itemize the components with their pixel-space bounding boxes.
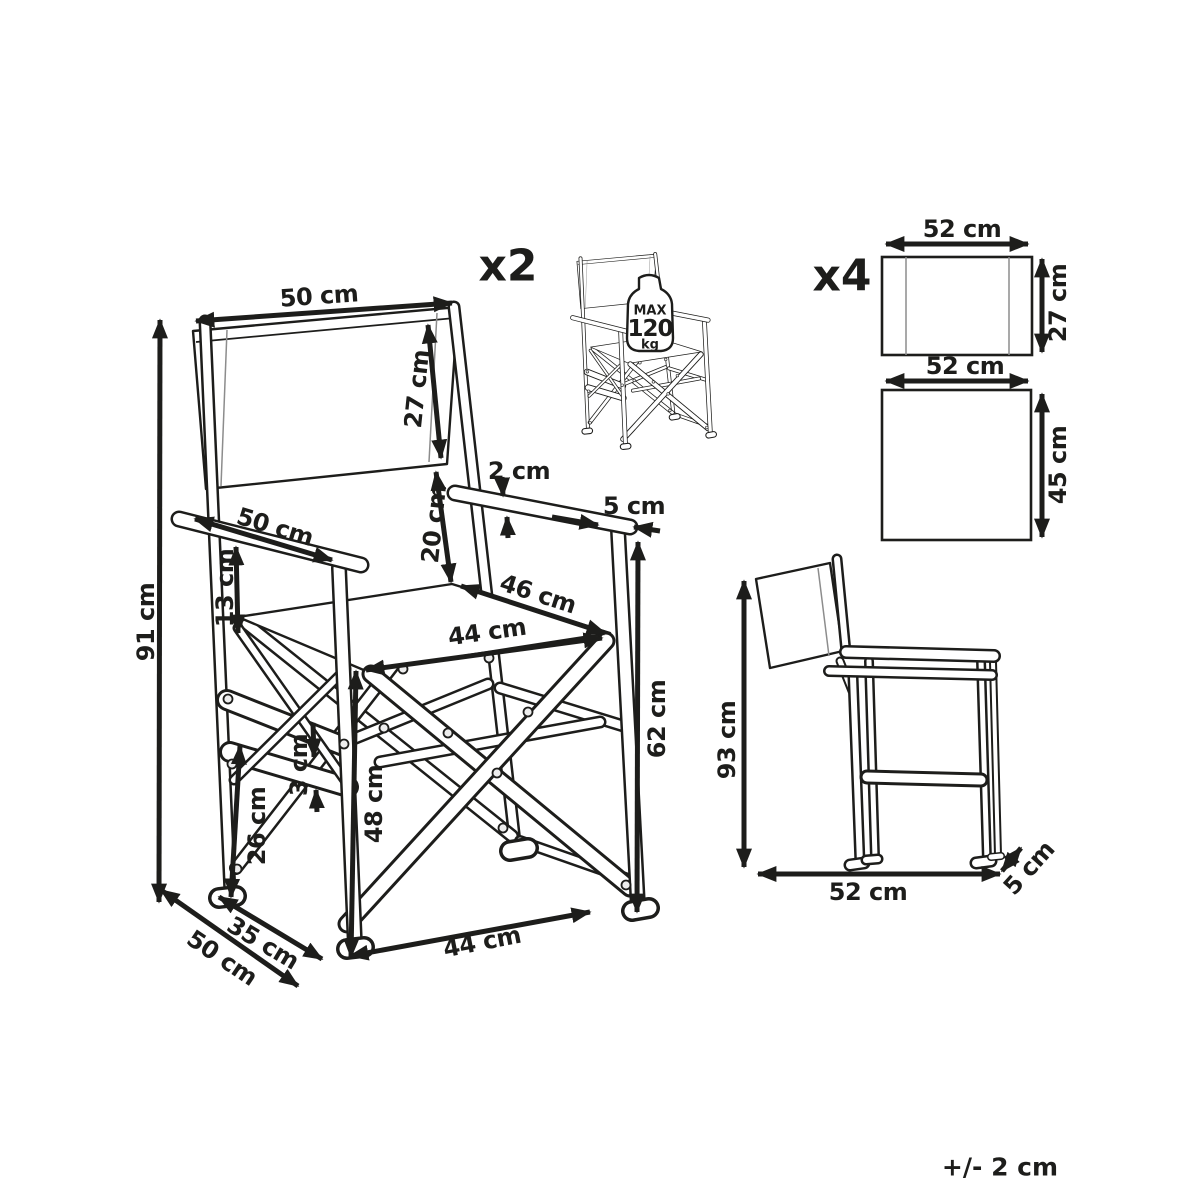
- dim-label: 52 cm: [829, 878, 908, 906]
- dim-label: 91 cm: [132, 583, 160, 662]
- dim-label: 45 cm: [1044, 426, 1072, 505]
- dim-label: 48 cm: [360, 765, 388, 844]
- dim-sv-frame-thickness: 5 cm: [998, 835, 1060, 900]
- chair-quantity-label: x2: [479, 241, 538, 292]
- dim-label: 62 cm: [643, 680, 671, 759]
- dim-backrest-panel-width: 52 cm: [886, 215, 1028, 244]
- panel-quantity-label: x4: [813, 251, 872, 302]
- dim-fv-total-height: 91 cm: [132, 320, 160, 902]
- dim-label: 52 cm: [926, 352, 1005, 380]
- dim-sv-total-height: 93 cm: [713, 581, 744, 867]
- dim-label: 26 cm: [243, 787, 271, 866]
- dim-fv-base-width: 44 cm: [350, 912, 590, 963]
- backrest-fabric-panel-drawing: [882, 257, 1032, 355]
- seat-fabric-panel-drawing: [882, 390, 1031, 540]
- dim-label: 5 cm: [603, 492, 665, 520]
- dim-label: 50 cm: [279, 279, 359, 312]
- dim-label: 93 cm: [713, 701, 741, 780]
- dim-label: 13 cm: [211, 549, 239, 628]
- dim-label: 52 cm: [923, 215, 1002, 243]
- dim-label: 3 cm: [285, 734, 313, 796]
- tolerance-note: +/- 2 cm: [942, 1153, 1058, 1182]
- dim-label: 44 cm: [441, 921, 523, 963]
- side-backrest: [756, 563, 843, 668]
- dim-sv-depth: 52 cm: [758, 874, 1000, 906]
- dim-seat-panel-height: 45 cm: [1042, 394, 1072, 537]
- dim-label: 27 cm: [1044, 264, 1072, 343]
- dim-seat-panel-width: 52 cm: [886, 352, 1028, 381]
- dim-fv-backrest-to-seat: 20 cm: [416, 472, 452, 582]
- side-view-chair-drawing: [756, 559, 1001, 865]
- dim-label: 2 cm: [488, 457, 550, 485]
- product-dimension-diagram: MAX 120 kg x2 x4 52 cm 27 cm 52 cm 45 cm: [0, 0, 1200, 1200]
- max-load-unit: kg: [641, 338, 659, 353]
- dim-fv-backrest-to-armrest: 13 cm: [211, 547, 239, 633]
- dim-backrest-panel-height: 27 cm: [1042, 259, 1072, 352]
